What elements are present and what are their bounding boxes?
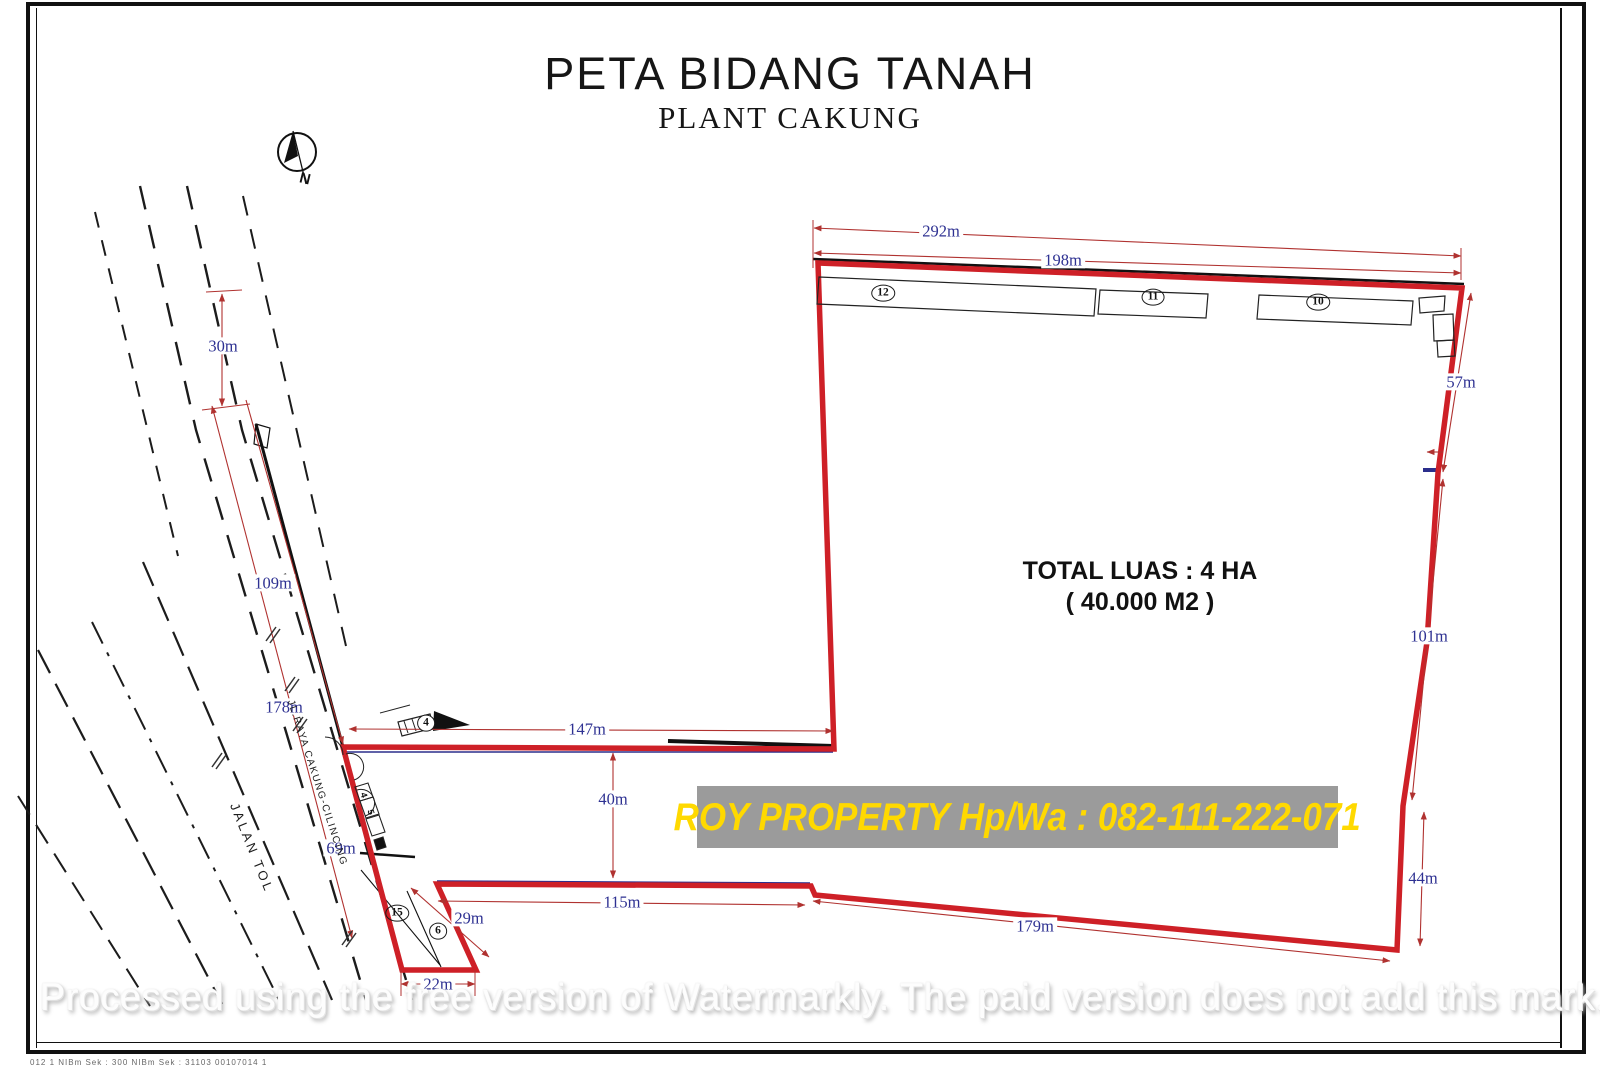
road-dashed-lines [18, 186, 412, 1006]
parcel-12-label: 12 [871, 285, 895, 302]
total-area-line2: ( 40.000 M2 ) [980, 587, 1300, 618]
total-area-line1: TOTAL LUAS : 4 HA [980, 556, 1300, 587]
parcel-15-label: 15 [385, 905, 409, 922]
parcel-10-label: 10 [1306, 294, 1330, 311]
parcel-4-label: 4 [417, 715, 435, 732]
map-drawing [0, 0, 1600, 1068]
dim-label-115m: 115m [601, 893, 644, 910]
footer-note: 012 1 NIBm Sek : 300 NIBm Sek : 31103 00… [30, 1058, 267, 1067]
parcel-11-label: 11 [1142, 289, 1165, 306]
land-plot-map-page: PETA BIDANG TANAH PLANT CAKUNG [0, 0, 1600, 1068]
dim-label-29m: 29m [451, 909, 486, 926]
dim-label-198m: 198m [1041, 251, 1085, 268]
building-outlines [817, 277, 1455, 357]
dim-label-101m: 101m [1407, 627, 1451, 644]
total-area-note: TOTAL LUAS : 4 HA ( 40.000 M2 ) [980, 556, 1300, 618]
dim-label-30m: 30m [205, 337, 240, 354]
dim-label-179m: 179m [1013, 917, 1057, 934]
dim-label-109m: 109m [251, 574, 295, 591]
dim-label-44m: 44m [1405, 869, 1440, 886]
agent-banner-text: ROY PROPERTY Hp/Wa : 082-111-222-071 [674, 794, 1361, 839]
dim-label-147m: 147m [565, 720, 609, 737]
dim-label-57m: 57m [1443, 373, 1478, 390]
hash-marks [212, 627, 356, 947]
agent-banner: ROY PROPERTY Hp/Wa : 082-111-222-071 [697, 786, 1338, 848]
dim-label-292m: 292m [919, 222, 963, 239]
watermark-text: Processed using the free version of Wate… [40, 977, 1550, 1020]
parcel-6-label: 6 [429, 923, 447, 940]
dim-label-40m: 40m [595, 790, 630, 807]
